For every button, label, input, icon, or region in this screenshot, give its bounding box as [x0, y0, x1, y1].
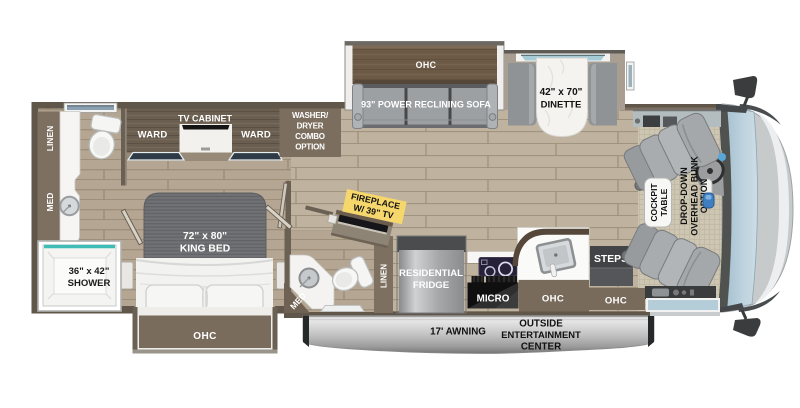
- svg-text:MICRO: MICRO: [477, 294, 510, 305]
- svg-text:LINEN: LINEN: [45, 126, 55, 152]
- svg-text:36" x 42": 36" x 42": [69, 266, 110, 277]
- svg-text:DINETTE: DINETTE: [541, 100, 582, 111]
- svg-text:COMBO: COMBO: [295, 132, 325, 141]
- svg-text:OHC: OHC: [416, 60, 437, 70]
- svg-text:SHOWER: SHOWER: [68, 278, 111, 289]
- svg-text:COCKPIT: COCKPIT: [649, 183, 659, 222]
- svg-text:FRIDGE: FRIDGE: [413, 280, 450, 291]
- svg-text:TABLE: TABLE: [659, 188, 669, 216]
- svg-text:KING BED: KING BED: [180, 244, 230, 255]
- svg-text:RESIDENTIAL: RESIDENTIAL: [399, 268, 463, 279]
- svg-text:72" x 80": 72" x 80": [183, 231, 227, 242]
- svg-text:WASHER/: WASHER/: [292, 111, 329, 120]
- svg-text:OHC: OHC: [542, 294, 564, 305]
- svg-text:ENTERTAINMENT: ENTERTAINMENT: [501, 329, 581, 340]
- svg-text:MED: MED: [45, 193, 55, 212]
- svg-text:DRYER: DRYER: [297, 122, 324, 131]
- svg-text:OUTSIDE: OUTSIDE: [519, 319, 563, 330]
- svg-text:LINEN: LINEN: [380, 264, 389, 288]
- svg-text:93" POWER RECLINING SOFA: 93" POWER RECLINING SOFA: [361, 100, 491, 110]
- svg-text:OPTION: OPTION: [295, 143, 325, 152]
- svg-text:OVERHEAD BUNK: OVERHEAD BUNK: [690, 156, 700, 236]
- svg-text:17' AWNING: 17' AWNING: [430, 327, 486, 338]
- svg-text:42" x 70": 42" x 70": [540, 87, 583, 98]
- svg-text:OHC: OHC: [605, 296, 627, 307]
- svg-text:WARD: WARD: [241, 130, 271, 141]
- svg-text:DROP-DOWN: DROP-DOWN: [679, 167, 689, 225]
- svg-text:CENTER: CENTER: [521, 342, 561, 353]
- svg-text:OHC: OHC: [193, 331, 216, 342]
- svg-text:WARD: WARD: [138, 130, 168, 141]
- svg-text:TV CABINET: TV CABINET: [178, 114, 233, 124]
